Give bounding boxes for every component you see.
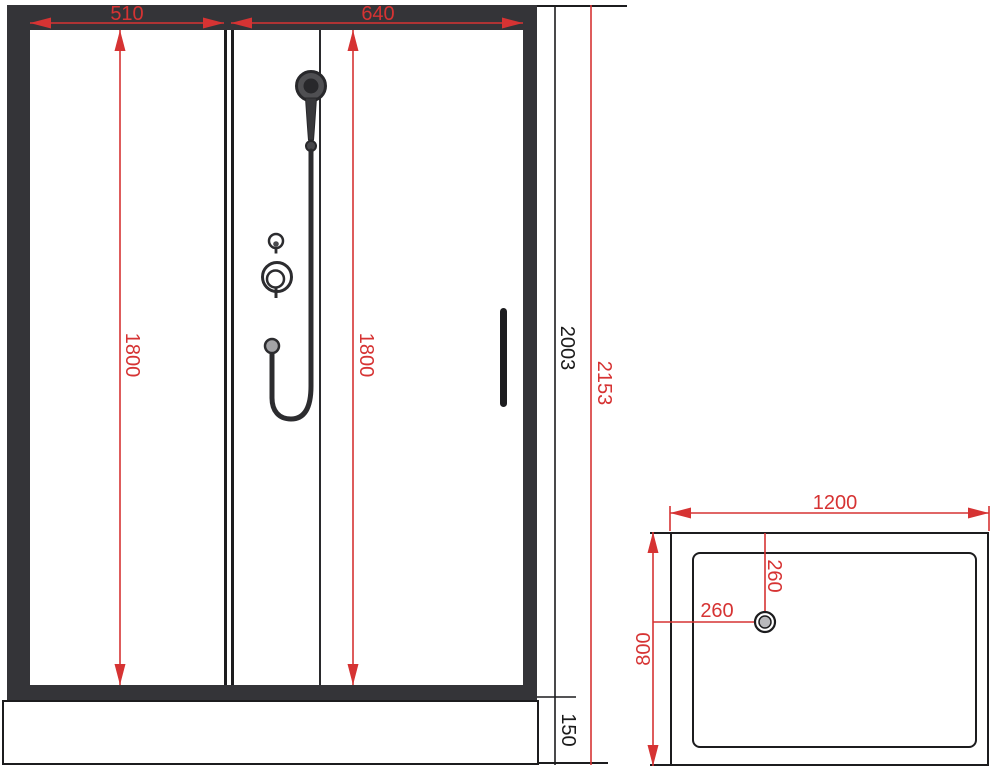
dimension-label-640: 640 <box>361 4 394 24</box>
diverter-knob-icon <box>269 234 283 254</box>
dimension-label-2003: 2003 <box>557 326 577 371</box>
dimension-label-1800-door: 1800 <box>356 333 376 378</box>
dimension-label-260-vertical: 260 <box>764 559 784 592</box>
door-handle-icon <box>500 308 507 407</box>
dimension-label-150: 150 <box>558 713 578 746</box>
drain-icon <box>755 612 775 632</box>
linework-overlay <box>0 0 1000 770</box>
dimension-label-260-horizontal: 260 <box>700 601 733 621</box>
drawing-canvas: 510 640 1800 1800 2003 2153 150 1200 800… <box>0 0 1000 770</box>
dimension-label-2153: 2153 <box>594 361 614 406</box>
mixer-valve-icon <box>263 263 292 299</box>
hose-outlet <box>265 339 279 353</box>
shower-handle <box>306 98 317 140</box>
dimension-label-1200: 1200 <box>813 493 858 513</box>
shower-column <box>263 72 508 420</box>
dimension-label-800: 800 <box>634 632 654 665</box>
dimension-label-510: 510 <box>110 4 143 24</box>
shower-head-center <box>304 79 319 94</box>
dimension-label-1800-left: 1800 <box>122 333 142 378</box>
